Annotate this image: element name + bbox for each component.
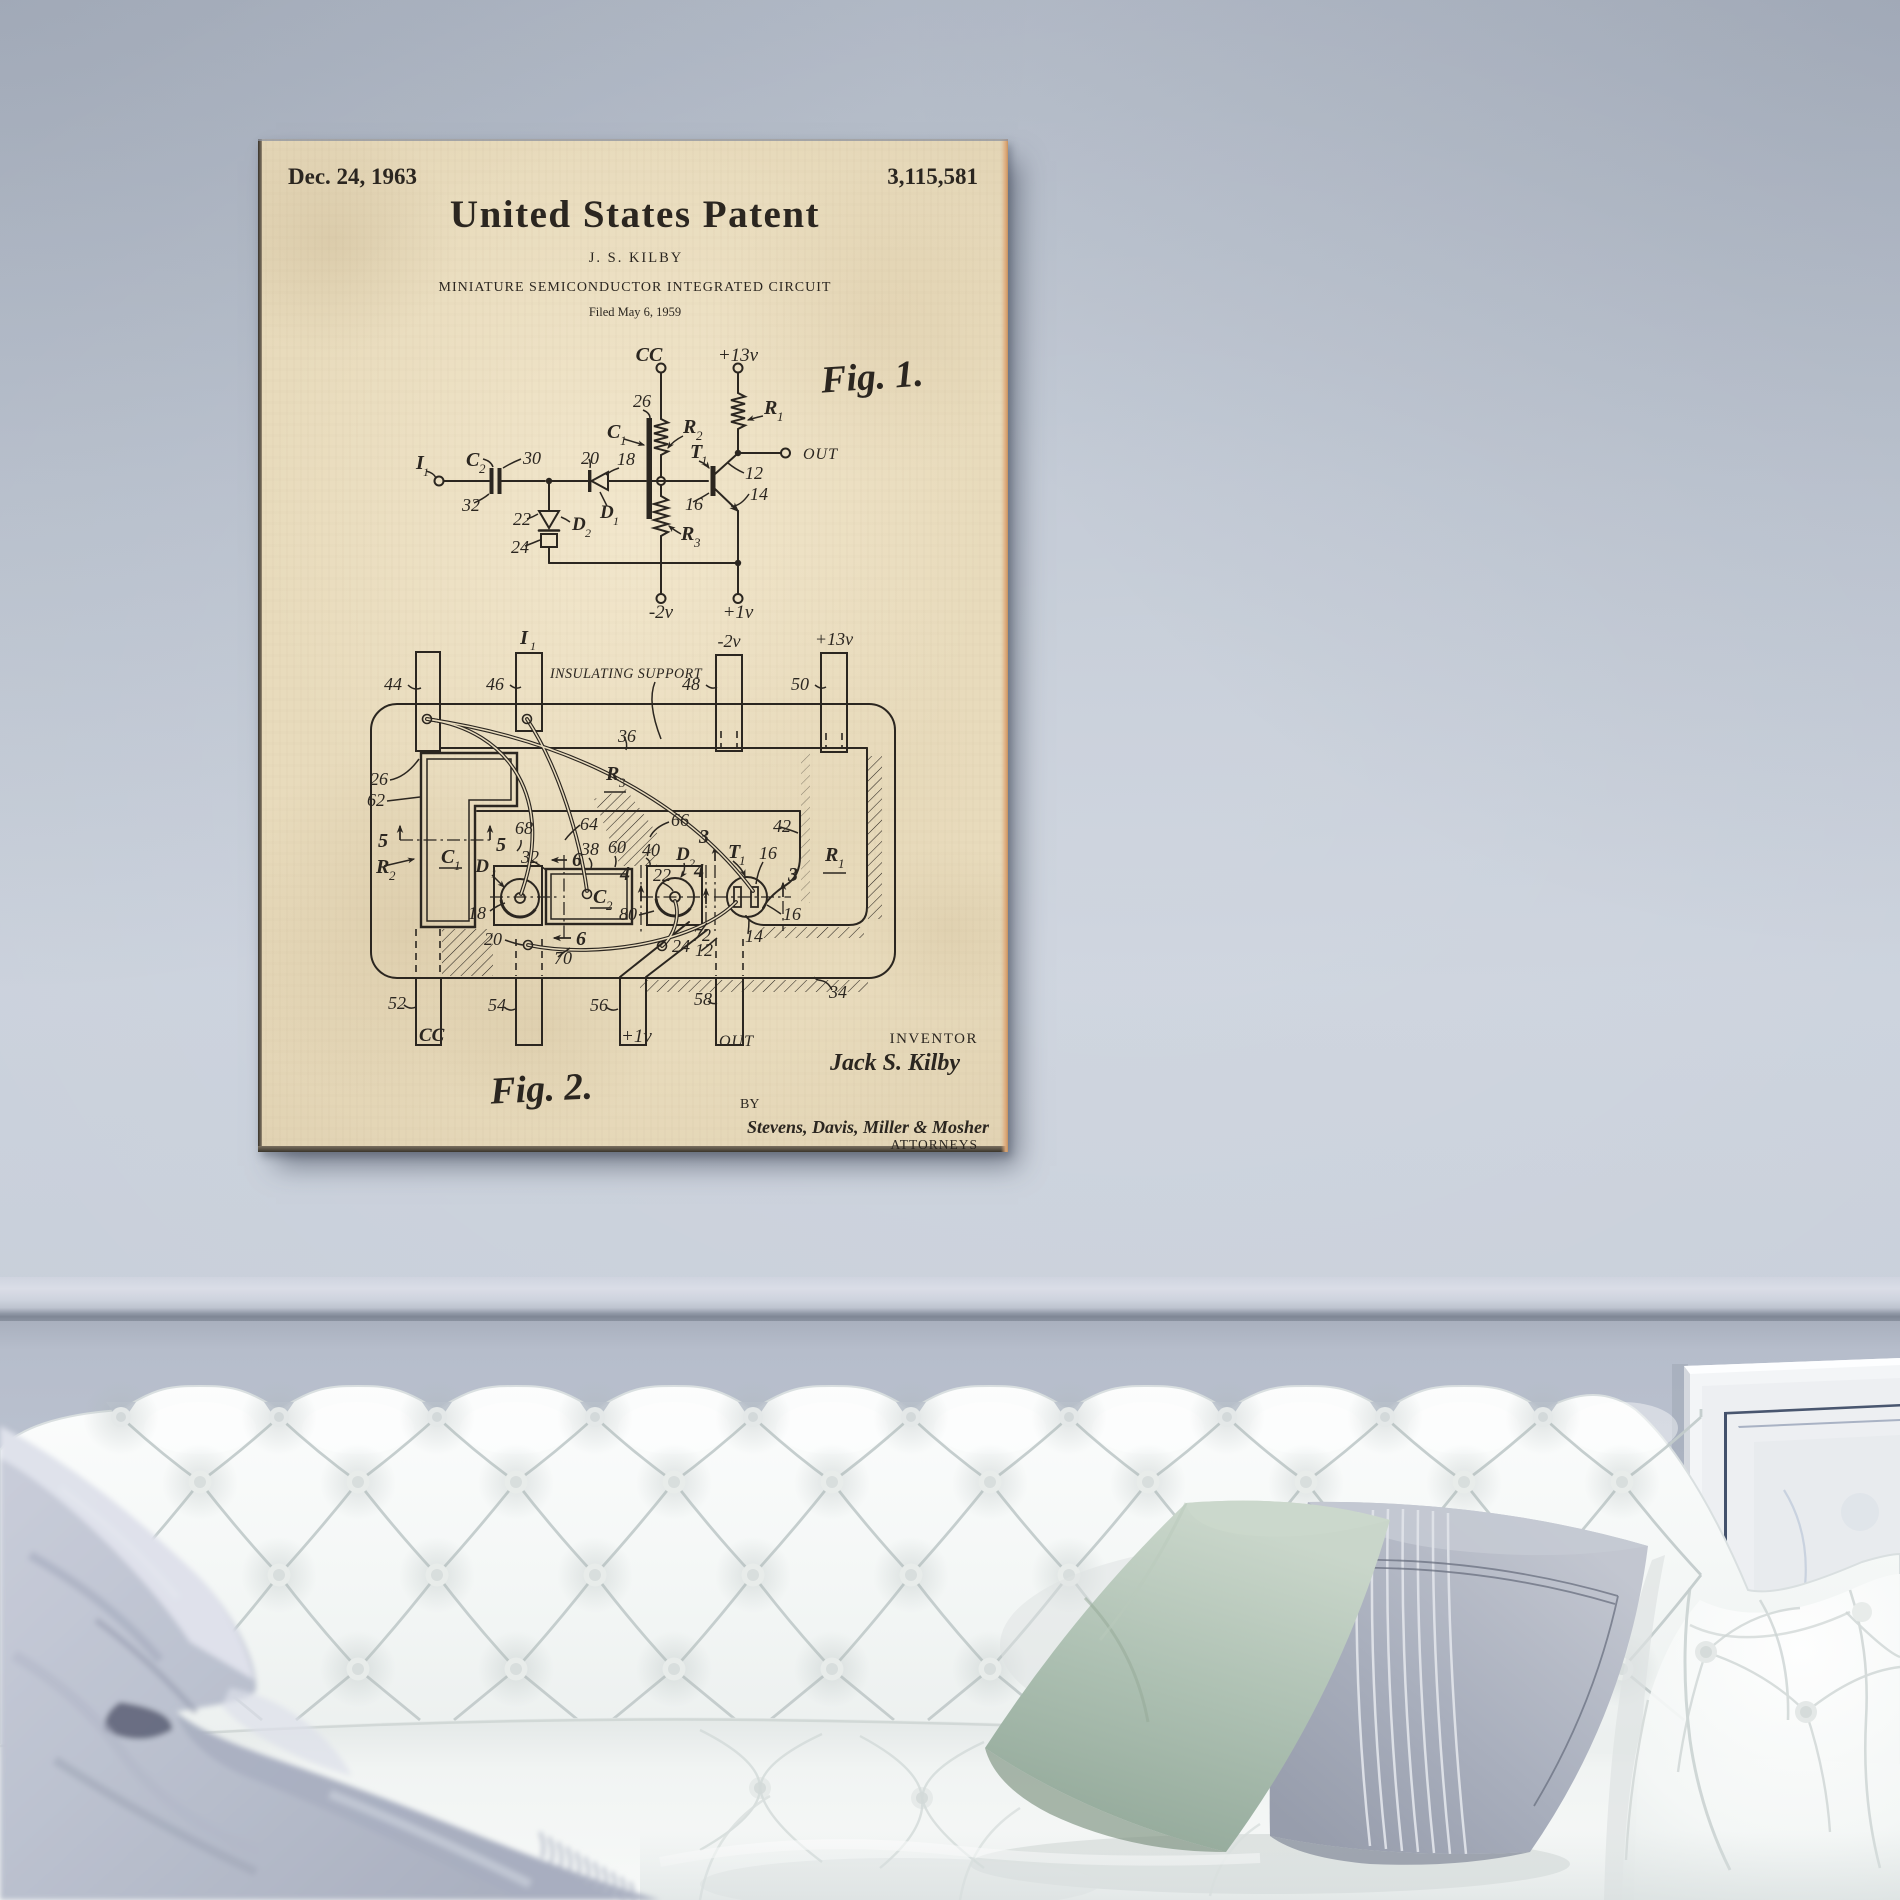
svg-text:1: 1 xyxy=(613,514,619,528)
svg-text:16: 16 xyxy=(759,843,777,863)
svg-text:R: R xyxy=(763,397,777,419)
svg-text:46: 46 xyxy=(486,674,504,694)
svg-text:+1v: +1v xyxy=(723,602,754,623)
svg-text:3: 3 xyxy=(618,775,626,790)
svg-text:3: 3 xyxy=(787,864,798,886)
svg-text:80: 80 xyxy=(619,904,637,924)
svg-text:58: 58 xyxy=(694,989,712,1009)
svg-text:38: 38 xyxy=(580,839,599,859)
svg-text:62: 62 xyxy=(367,790,385,810)
svg-text:40: 40 xyxy=(642,840,660,860)
svg-text:14: 14 xyxy=(745,926,763,946)
svg-text:Stevens, Davis, Miller & Moshe: Stevens, Davis, Miller & Mosher xyxy=(747,1117,990,1137)
svg-text:BY: BY xyxy=(740,1097,759,1112)
svg-text:16: 16 xyxy=(783,904,801,924)
svg-text:4: 4 xyxy=(693,860,704,882)
svg-text:INVENTOR: INVENTOR xyxy=(890,1031,978,1047)
svg-text:26: 26 xyxy=(633,391,651,411)
svg-text:24: 24 xyxy=(511,537,529,557)
svg-text:-2v: -2v xyxy=(649,602,674,623)
svg-text:2: 2 xyxy=(389,868,396,883)
svg-text:26: 26 xyxy=(370,769,388,789)
svg-text:+13v: +13v xyxy=(718,345,759,366)
svg-text:J. S. KILBY: J. S. KILBY xyxy=(589,250,684,266)
svg-text:6: 6 xyxy=(576,928,586,950)
svg-text:22: 22 xyxy=(653,865,671,885)
svg-text:R: R xyxy=(824,844,838,866)
svg-text:24: 24 xyxy=(672,936,690,956)
svg-text:C: C xyxy=(593,886,607,908)
svg-text:14: 14 xyxy=(750,484,768,504)
svg-text:United States Patent: United States Patent xyxy=(450,193,820,236)
svg-text:50: 50 xyxy=(791,674,809,694)
svg-text:2: 2 xyxy=(585,526,591,540)
svg-text:R: R xyxy=(682,416,696,438)
svg-text:+1v: +1v xyxy=(621,1026,652,1047)
svg-text:56: 56 xyxy=(590,995,608,1015)
svg-text:52: 52 xyxy=(388,993,406,1013)
svg-text:32: 32 xyxy=(461,495,480,515)
svg-text:R: R xyxy=(680,523,694,545)
svg-text:34: 34 xyxy=(828,982,847,1002)
svg-text:64: 64 xyxy=(580,814,598,834)
svg-text:1: 1 xyxy=(739,853,746,868)
svg-text:-2v: -2v xyxy=(718,631,741,651)
svg-text:MINIATURE SEMICONDUCTOR INTEGR: MINIATURE SEMICONDUCTOR INTEGRATED CIRCU… xyxy=(439,280,832,295)
svg-text:CC: CC xyxy=(636,344,663,366)
svg-text:2: 2 xyxy=(479,461,486,476)
svg-text:18: 18 xyxy=(468,903,486,923)
svg-text:Fig. 2.: Fig. 2. xyxy=(488,1065,593,1112)
svg-text:Jack S. Kilby: Jack S. Kilby xyxy=(829,1050,960,1076)
svg-text:1: 1 xyxy=(777,409,784,424)
svg-text:D: D xyxy=(675,844,690,865)
svg-text:INSULATING SUPPORT: INSULATING SUPPORT xyxy=(549,666,703,682)
svg-text:5: 5 xyxy=(378,830,388,852)
svg-text:OUT: OUT xyxy=(803,446,838,463)
svg-text:C: C xyxy=(441,846,455,868)
svg-text:60: 60 xyxy=(608,837,626,857)
svg-text:OUT: OUT xyxy=(719,1033,754,1050)
svg-text:5: 5 xyxy=(496,834,506,856)
svg-text:4: 4 xyxy=(619,863,630,885)
svg-text:C: C xyxy=(607,421,621,443)
svg-text:R: R xyxy=(375,856,389,878)
svg-text:16: 16 xyxy=(685,494,703,514)
svg-text:3,115,581: 3,115,581 xyxy=(887,164,978,189)
svg-text:D: D xyxy=(474,856,489,877)
svg-text:66: 66 xyxy=(671,810,689,830)
svg-text:20: 20 xyxy=(484,929,502,949)
svg-text:1: 1 xyxy=(454,858,461,873)
svg-text:+13v: +13v xyxy=(815,629,853,649)
svg-text:3: 3 xyxy=(693,535,701,550)
svg-text:Dec. 24, 1963: Dec. 24, 1963 xyxy=(288,164,417,189)
svg-text:32: 32 xyxy=(520,847,539,867)
svg-text:Fig. 1.: Fig. 1. xyxy=(819,353,925,402)
svg-text:D: D xyxy=(571,514,586,535)
svg-text:C: C xyxy=(466,449,480,471)
svg-text:2: 2 xyxy=(606,898,613,913)
svg-text:70: 70 xyxy=(554,948,572,968)
svg-text:R: R xyxy=(605,763,619,785)
svg-text:Filed May 6, 1959: Filed May 6, 1959 xyxy=(589,305,681,319)
svg-text:30: 30 xyxy=(522,448,541,468)
svg-text:44: 44 xyxy=(384,674,402,694)
svg-text:18: 18 xyxy=(617,449,635,469)
svg-text:42: 42 xyxy=(773,816,791,836)
svg-text:3: 3 xyxy=(698,826,709,848)
svg-text:ATTORNEYS: ATTORNEYS xyxy=(890,1137,978,1152)
svg-text:1: 1 xyxy=(620,433,627,448)
svg-text:1: 1 xyxy=(530,639,536,653)
svg-text:CC: CC xyxy=(419,1025,445,1046)
svg-text:I: I xyxy=(519,627,529,649)
svg-text:1: 1 xyxy=(838,856,845,871)
svg-text:12: 12 xyxy=(745,463,763,483)
svg-text:68: 68 xyxy=(515,818,533,838)
svg-text:54: 54 xyxy=(488,995,506,1015)
